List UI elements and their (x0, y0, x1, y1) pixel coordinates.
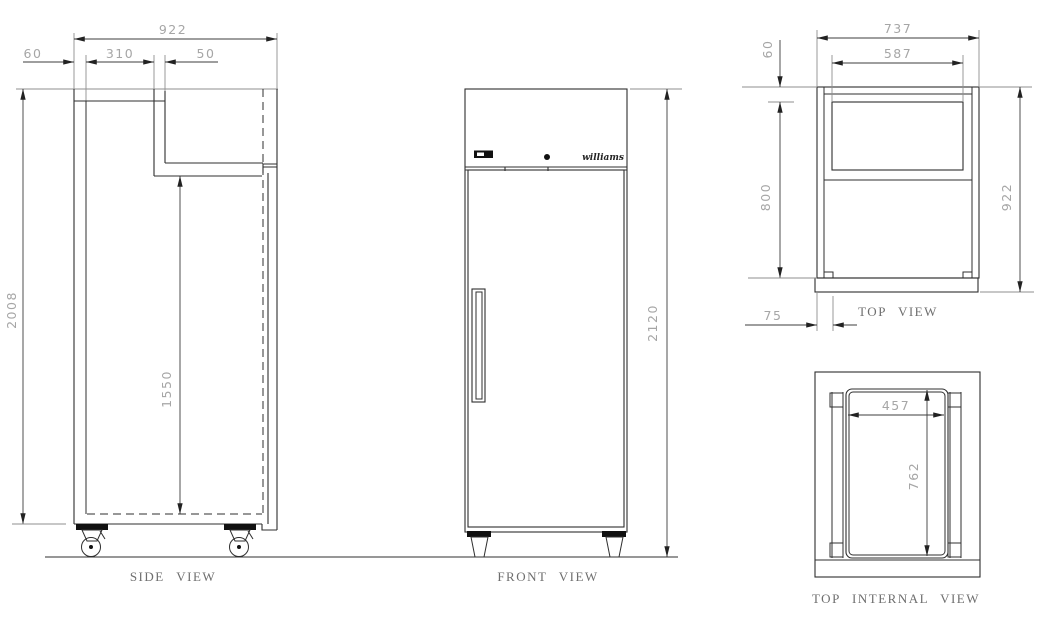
caster-hub (237, 545, 241, 549)
top-dim-depth-text: 922 (999, 183, 1014, 211)
front-leg-left (467, 531, 491, 557)
side-caster-right (224, 524, 256, 557)
top-dim-body-depth-text: 800 (758, 183, 773, 211)
leg-foot (606, 537, 623, 557)
front-controller-display (477, 153, 484, 157)
front-door-handle-inner (476, 292, 482, 399)
leg-foot (471, 537, 488, 557)
front-lock-dot (544, 154, 550, 160)
top-internal-view-label: TOP INTERNAL VIEW (812, 591, 980, 606)
front-brand-logo: williams (582, 153, 624, 163)
technical-drawing-svg: 922 60 310 50 2008 1550 SIDE VIEW willia… (0, 0, 1039, 614)
side-door-top-bracket (263, 164, 277, 173)
top-corner-tab-right (963, 272, 972, 278)
top-cabinet-outline (817, 87, 979, 278)
side-dim-internal-height-text: 1550 (159, 370, 174, 408)
caster-hub (89, 545, 93, 549)
internal-liner-outer (846, 389, 948, 558)
front-dim-height-text: 2120 (645, 304, 660, 342)
front-view: williams 2120 FRONT VIEW (465, 89, 682, 584)
top-view-label: TOP VIEW (858, 304, 938, 319)
caster-plate (224, 524, 256, 530)
front-door-handle (472, 289, 485, 402)
leg-plate (467, 531, 491, 537)
drawing-sheet: 922 60 310 50 2008 1550 SIDE VIEW willia… (0, 0, 1039, 614)
side-dim-depth-text: 922 (159, 22, 187, 37)
top-internal-view: 457 762 TOP INTERNAL VIEW (812, 372, 980, 606)
top-dim-gap-text: 60 (760, 40, 775, 59)
side-dim-recess-offset-text: 310 (106, 46, 134, 61)
side-view: 922 60 310 50 2008 1550 SIDE VIEW (4, 22, 278, 584)
front-view-label: FRONT VIEW (497, 569, 598, 584)
top-view: 737 587 60 800 922 75 TOP VIEW (742, 21, 1034, 331)
internal-liner-inner (849, 392, 945, 555)
side-dim-height-text: 2008 (4, 291, 19, 329)
internal-dim-width-text: 457 (882, 398, 910, 413)
internal-dim-depth-text: 762 (906, 462, 921, 490)
top-corner-tab-left (824, 272, 833, 278)
top-dim-door-offset-text: 75 (764, 308, 783, 323)
side-door-bottom-step (262, 524, 277, 530)
caster-strut (100, 531, 105, 539)
top-dim-recess-width-text: 587 (884, 46, 912, 61)
leg-plate (602, 531, 626, 537)
top-door-slab (815, 278, 978, 292)
top-dim-width-text: 737 (884, 21, 912, 36)
caster-strut (248, 531, 253, 539)
caster-plate (76, 524, 108, 530)
side-caster-left (76, 524, 108, 557)
top-recess-outline (832, 102, 963, 170)
side-view-label: SIDE VIEW (130, 569, 216, 584)
side-dim-rear-text: 60 (24, 46, 43, 61)
front-leg-right (602, 531, 626, 557)
front-door-outline (468, 170, 624, 527)
side-dim-step-text: 50 (197, 46, 216, 61)
